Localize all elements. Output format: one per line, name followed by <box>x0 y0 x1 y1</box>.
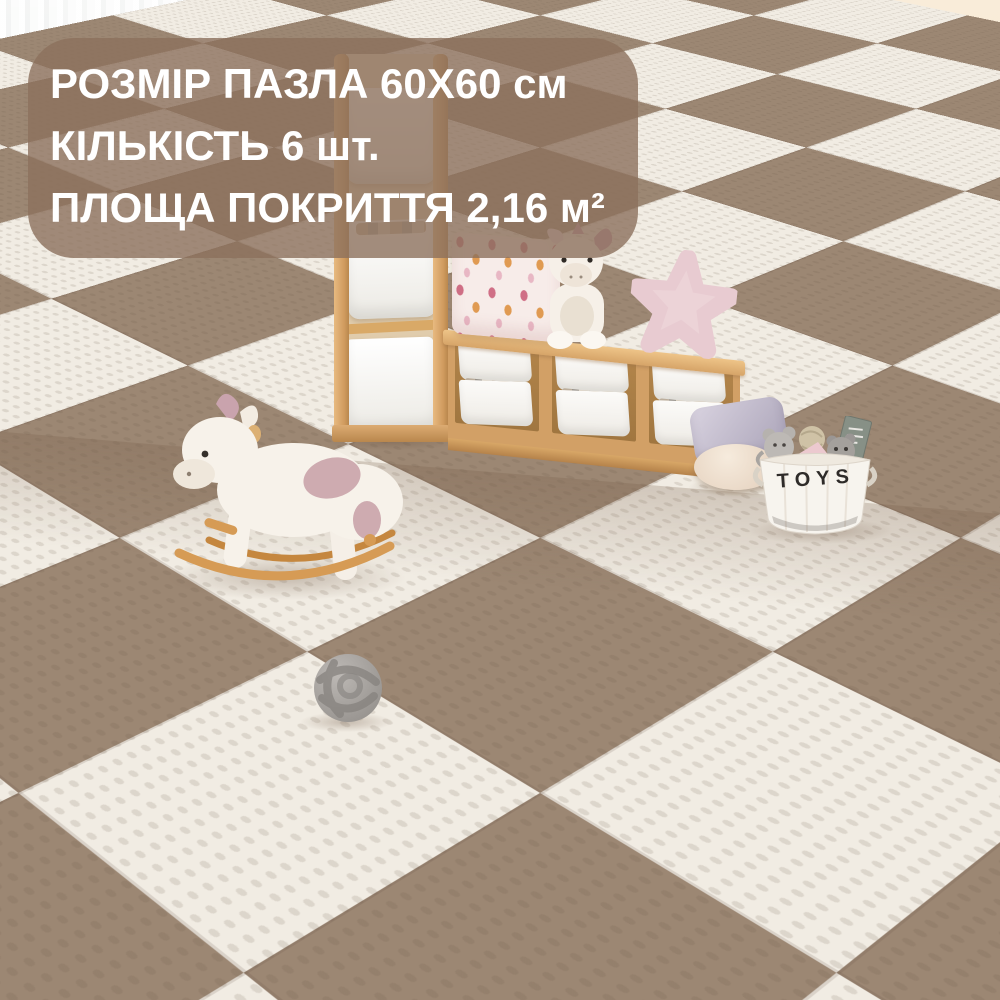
overlay-line-1: РОЗМІР ПАЗЛА 60X60 см <box>50 53 616 115</box>
star-pillow <box>625 245 741 361</box>
bench-bin <box>459 380 534 427</box>
bench-bin <box>556 390 631 437</box>
product-photo: hello <box>0 0 1000 1000</box>
overlay-line-3: ПЛОЩА ПОКРИТТЯ 2,16 м² <box>50 177 616 239</box>
overlay-line-2: КІЛЬКІСТЬ 6 шт. <box>50 115 616 177</box>
info-overlay: РОЗМІР ПАЗЛА 60X60 см КІЛЬКІСТЬ 6 шт. ПЛ… <box>28 38 638 258</box>
knot-ball <box>312 652 384 724</box>
rocking-horse <box>164 390 406 598</box>
